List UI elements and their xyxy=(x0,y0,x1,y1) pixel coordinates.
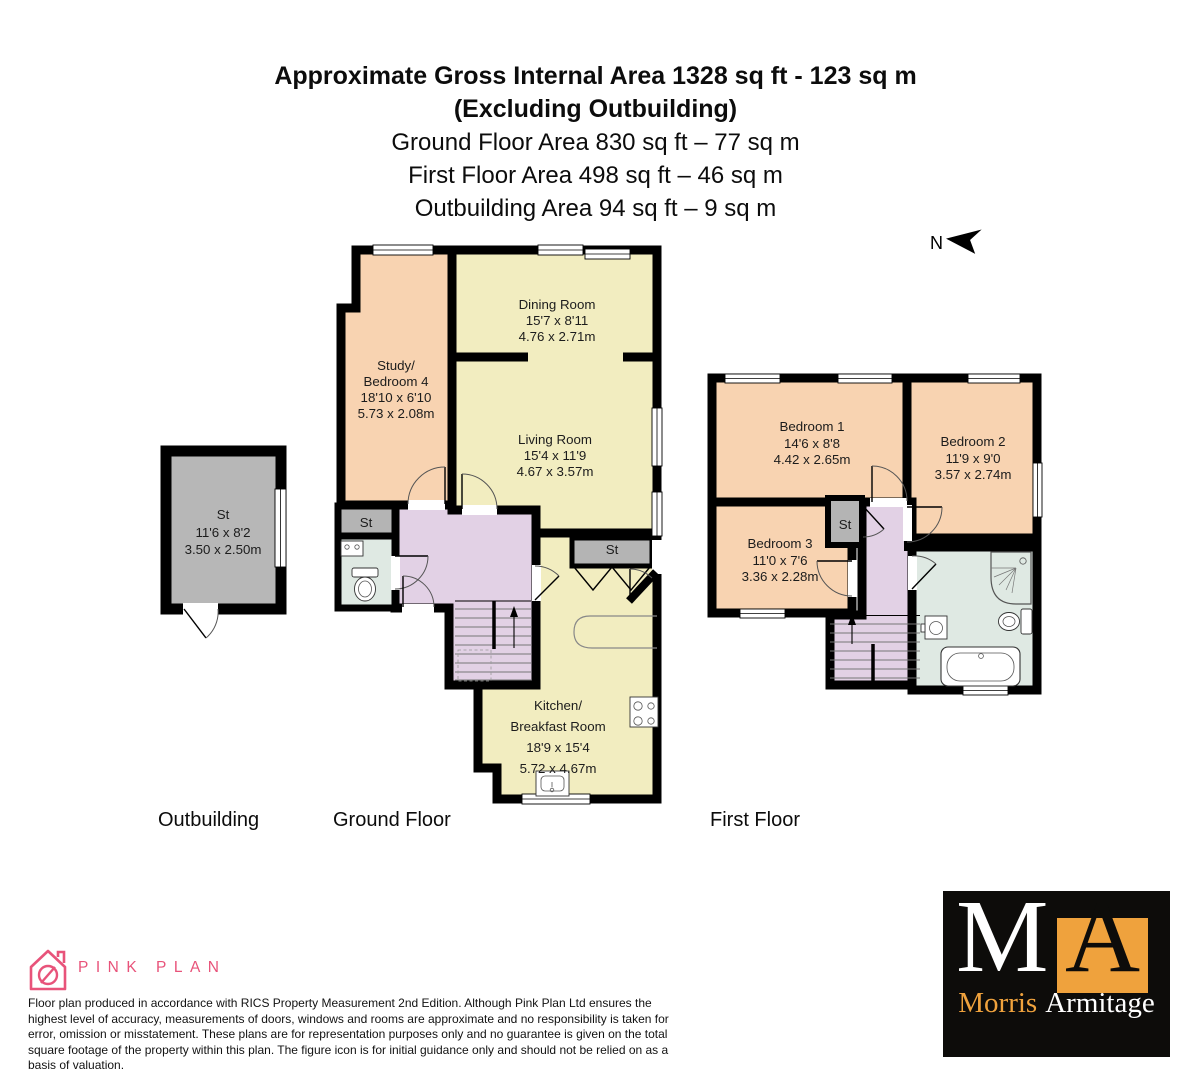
floor-plan-outbuilding: St 11'6 x 8'2 3.50 x 2.50m xyxy=(150,430,295,645)
room-label: Study/ xyxy=(377,358,415,373)
room-dims-imperial: 18'10 x 6'10 xyxy=(361,390,432,405)
header-outbuilding-area: Outbuilding Area 94 sq ft – 9 sq m xyxy=(0,192,1191,225)
floorplan-page: Approximate Gross Internal Area 1328 sq … xyxy=(0,0,1191,1080)
room-dims-imperial: 15'4 x 11'9 xyxy=(524,448,587,463)
caption-ground-floor: Ground Floor xyxy=(333,809,451,832)
caption-outbuilding: Outbuilding xyxy=(158,809,259,832)
room-label: Dining Room xyxy=(519,297,596,312)
bathtub-icon xyxy=(941,647,1020,686)
north-arrow-icon xyxy=(944,225,981,254)
room-dims-metric: 5.73 x 2.08m xyxy=(358,406,435,421)
window xyxy=(585,249,630,259)
logo-word-armitage: Armitage xyxy=(1045,987,1155,1019)
room-dims-metric: 5.72 x 4.67m xyxy=(520,761,597,776)
room-label: Breakfast Room xyxy=(510,719,605,734)
room-dims-imperial: 11'6 x 8'2 xyxy=(195,525,250,540)
window xyxy=(968,374,1020,383)
caption-first-floor: First Floor xyxy=(710,809,800,832)
logo-word-morris: Morris xyxy=(958,987,1037,1019)
header-first-area: First Floor Area 498 sq ft – 46 sq m xyxy=(0,159,1191,192)
room-label: Living Room xyxy=(518,432,592,447)
agency-logo: M A MorrisArmitage xyxy=(943,891,1170,1057)
floor-plan-ground: Dining Room 15'7 x 8'11 4.76 x 2.71m Stu… xyxy=(325,236,670,820)
window xyxy=(740,609,785,618)
room-label: Bedroom 1 xyxy=(779,419,844,434)
sink-icon xyxy=(341,541,363,556)
room-dims-metric: 3.36 x 2.28m xyxy=(742,569,819,584)
window xyxy=(652,408,662,466)
room-dims-imperial: 11'0 x 7'6 xyxy=(752,553,807,568)
pink-plan-house-icon xyxy=(27,947,69,993)
north-label: N xyxy=(930,233,943,253)
door xyxy=(183,603,218,638)
room-label: St xyxy=(217,507,230,522)
logo-letter-m: M xyxy=(956,877,1048,996)
room-label: St xyxy=(839,517,852,532)
window xyxy=(373,245,433,255)
room-dims-imperial: 11'9 x 9'0 xyxy=(945,451,1000,466)
room-dims-imperial: 14'6 x 8'8 xyxy=(784,436,840,451)
disclaimer-text: Floor plan produced in accordance with R… xyxy=(28,996,690,1074)
room-label: Bedroom 4 xyxy=(363,374,428,389)
window xyxy=(838,374,892,383)
hallway xyxy=(395,505,536,685)
header-ground-area: Ground Floor Area 830 sq ft – 77 sq m xyxy=(0,126,1191,159)
window xyxy=(963,686,1008,695)
room-dims-metric: 4.67 x 3.57m xyxy=(517,464,594,479)
room-dims-imperial: 18'9 x 15'4 xyxy=(526,740,590,755)
window xyxy=(1033,463,1042,517)
room-label: Bedroom 3 xyxy=(747,536,812,551)
compass: N xyxy=(922,222,984,262)
room-dims-metric: 3.57 x 2.74m xyxy=(935,467,1012,482)
room-dims-metric: 4.42 x 2.65m xyxy=(774,452,851,467)
window xyxy=(538,245,583,255)
room-label: St xyxy=(360,515,373,530)
window xyxy=(652,492,662,536)
header: Approximate Gross Internal Area 1328 sq … xyxy=(0,60,1191,225)
room-dims-metric: 3.50 x 2.50m xyxy=(185,542,262,557)
wall-opening xyxy=(528,352,623,363)
pink-plan-wordmark: PINK PLAN xyxy=(78,959,226,977)
hob-icon xyxy=(630,697,658,727)
header-title-line1: Approximate Gross Internal Area 1328 sq … xyxy=(0,60,1191,93)
room-dims-imperial: 15'7 x 8'11 xyxy=(526,313,589,328)
sink-icon xyxy=(921,616,947,639)
room-label: St xyxy=(606,542,619,557)
logo-wordmark: MorrisArmitage xyxy=(943,987,1170,1020)
floor-plan-first: Bedroom 1 14'6 x 8'8 4.42 x 2.65m Bedroo… xyxy=(700,365,1050,710)
header-title-line2: (Excluding Outbuilding) xyxy=(0,93,1191,126)
logo-letter-a: A xyxy=(1065,877,1140,996)
room-dims-metric: 4.76 x 2.71m xyxy=(519,329,596,344)
window xyxy=(725,374,780,383)
room-label: Bedroom 2 xyxy=(940,434,1005,449)
room-label: Kitchen/ xyxy=(534,698,582,713)
window xyxy=(275,489,286,567)
